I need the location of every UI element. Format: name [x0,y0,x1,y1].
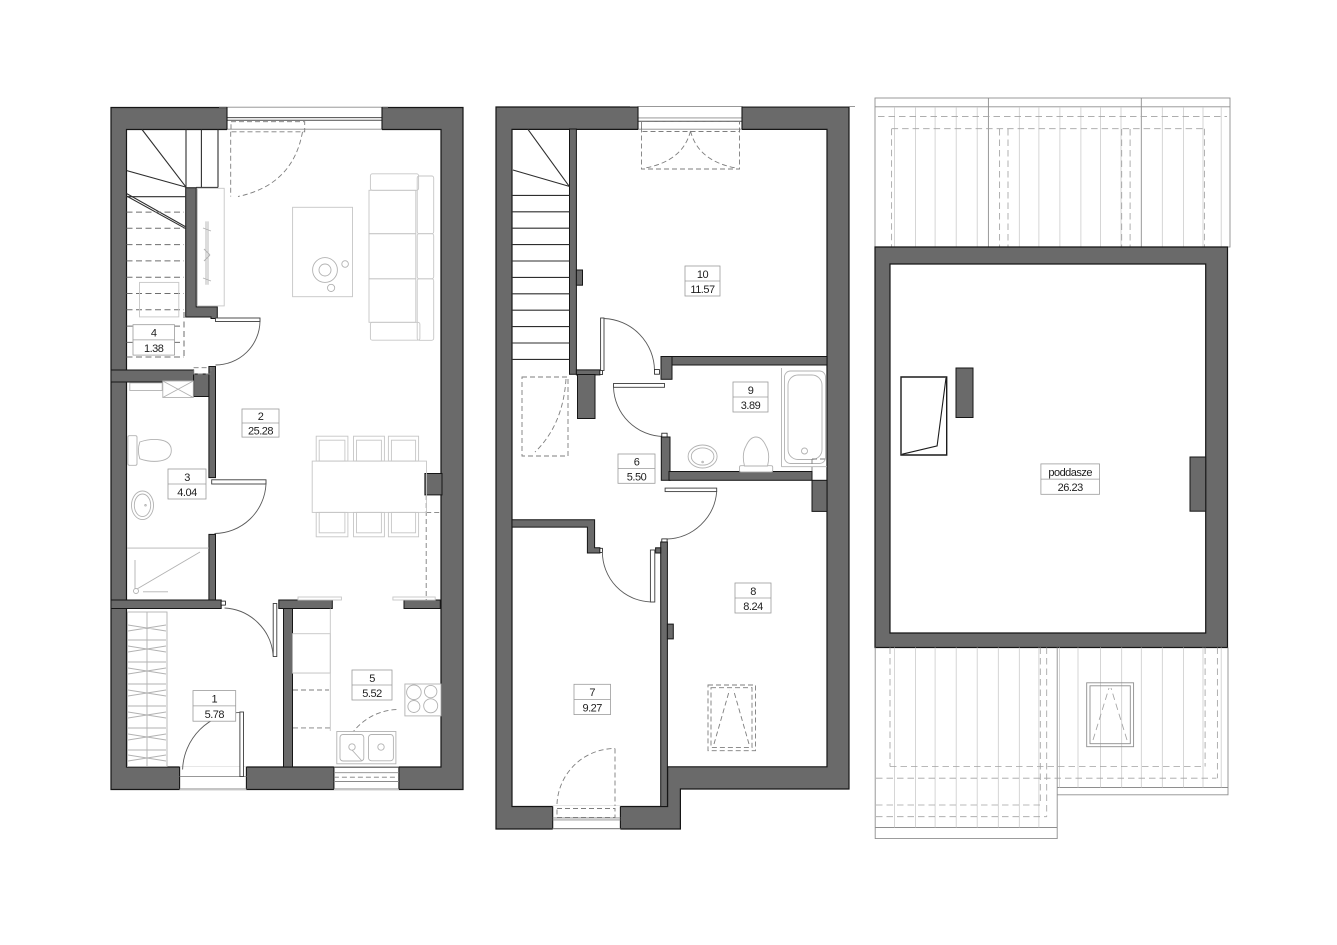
svg-text:5.78: 5.78 [205,709,225,721]
svg-text:9: 9 [748,385,754,397]
svg-text:8.24: 8.24 [743,601,763,613]
svg-text:6: 6 [634,456,640,468]
svg-text:5.52: 5.52 [362,688,382,700]
svg-text:4.04: 4.04 [177,487,197,499]
svg-text:26.23: 26.23 [1058,482,1083,494]
svg-text:10: 10 [697,269,709,281]
svg-text:11.57: 11.57 [690,284,715,296]
svg-text:9.27: 9.27 [582,703,602,715]
svg-text:25.28: 25.28 [248,426,273,438]
svg-text:5.50: 5.50 [627,471,647,483]
svg-text:4: 4 [151,328,157,340]
svg-text:7: 7 [589,687,595,699]
svg-text:2: 2 [258,411,264,423]
svg-text:8: 8 [750,586,756,598]
svg-text:5: 5 [369,673,375,685]
svg-text:3: 3 [184,472,190,484]
svg-text:1.38: 1.38 [144,343,164,355]
svg-text:poddasze: poddasze [1048,467,1092,479]
svg-text:1: 1 [211,694,217,706]
svg-text:3.89: 3.89 [741,400,761,412]
